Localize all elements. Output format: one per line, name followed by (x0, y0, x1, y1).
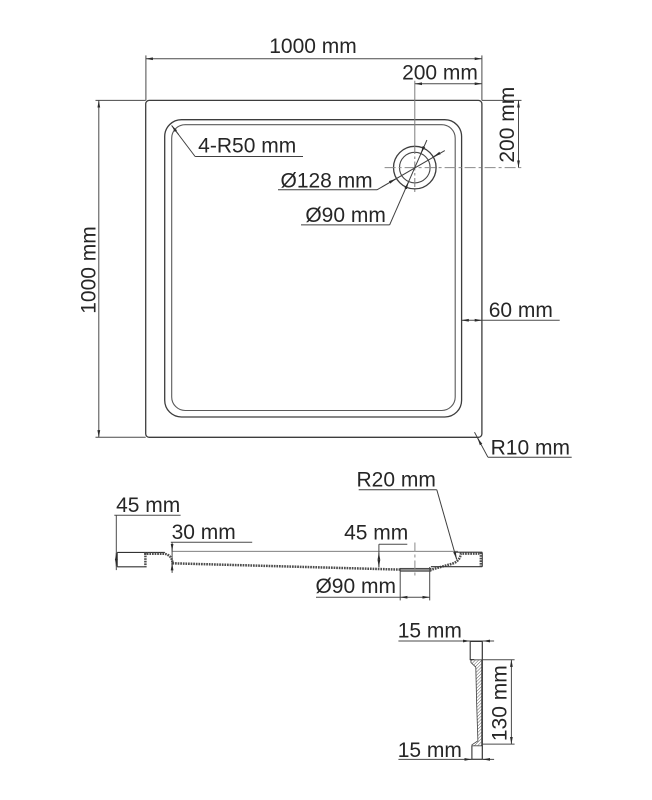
svg-text:Ø128 mm: Ø128 mm (280, 169, 372, 192)
svg-text:45 mm: 45 mm (116, 494, 180, 517)
svg-text:Ø90 mm: Ø90 mm (315, 575, 396, 598)
svg-text:4-R50 mm: 4-R50 mm (198, 134, 296, 157)
svg-text:1000 mm: 1000 mm (269, 35, 357, 58)
svg-text:Ø90 mm: Ø90 mm (305, 204, 386, 227)
svg-text:15 mm: 15 mm (398, 619, 462, 642)
svg-text:1000 mm: 1000 mm (77, 226, 100, 314)
svg-text:R20 mm: R20 mm (357, 468, 436, 491)
svg-text:45 mm: 45 mm (344, 522, 408, 545)
svg-text:200 mm: 200 mm (496, 87, 519, 163)
svg-text:30 mm: 30 mm (172, 521, 236, 544)
svg-text:200 mm: 200 mm (402, 62, 478, 85)
svg-text:60 mm: 60 mm (489, 299, 553, 322)
svg-text:130 mm: 130 mm (489, 665, 512, 741)
svg-text:R10 mm: R10 mm (491, 437, 570, 460)
svg-text:15 mm: 15 mm (398, 739, 462, 762)
